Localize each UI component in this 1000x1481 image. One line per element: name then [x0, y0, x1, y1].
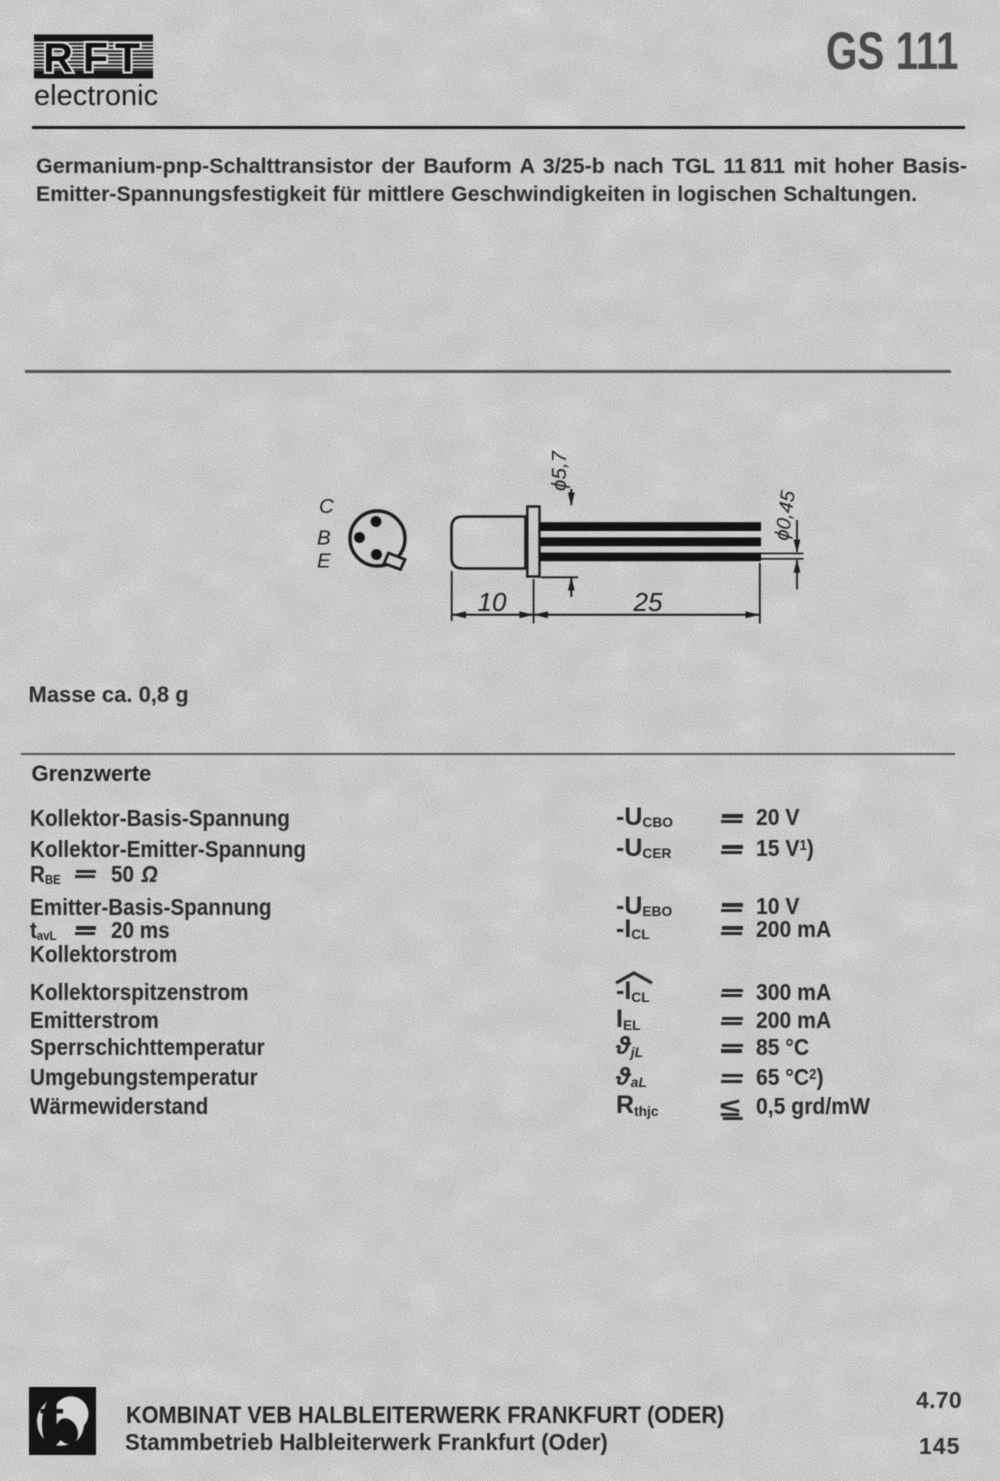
svg-text:B: B [317, 527, 331, 550]
svg-text:R: R [43, 35, 73, 81]
svg-text:ϕ0,45: ϕ0,45 [771, 488, 800, 541]
svg-text:F: F [83, 35, 108, 81]
svg-text:E: E [317, 550, 331, 573]
svg-text:ϕ5,7: ϕ5,7 [548, 449, 571, 490]
svg-text:10: 10 [478, 587, 507, 617]
svg-text:25: 25 [633, 587, 663, 617]
svg-text:T: T [115, 35, 140, 81]
svg-text:C: C [319, 495, 334, 518]
